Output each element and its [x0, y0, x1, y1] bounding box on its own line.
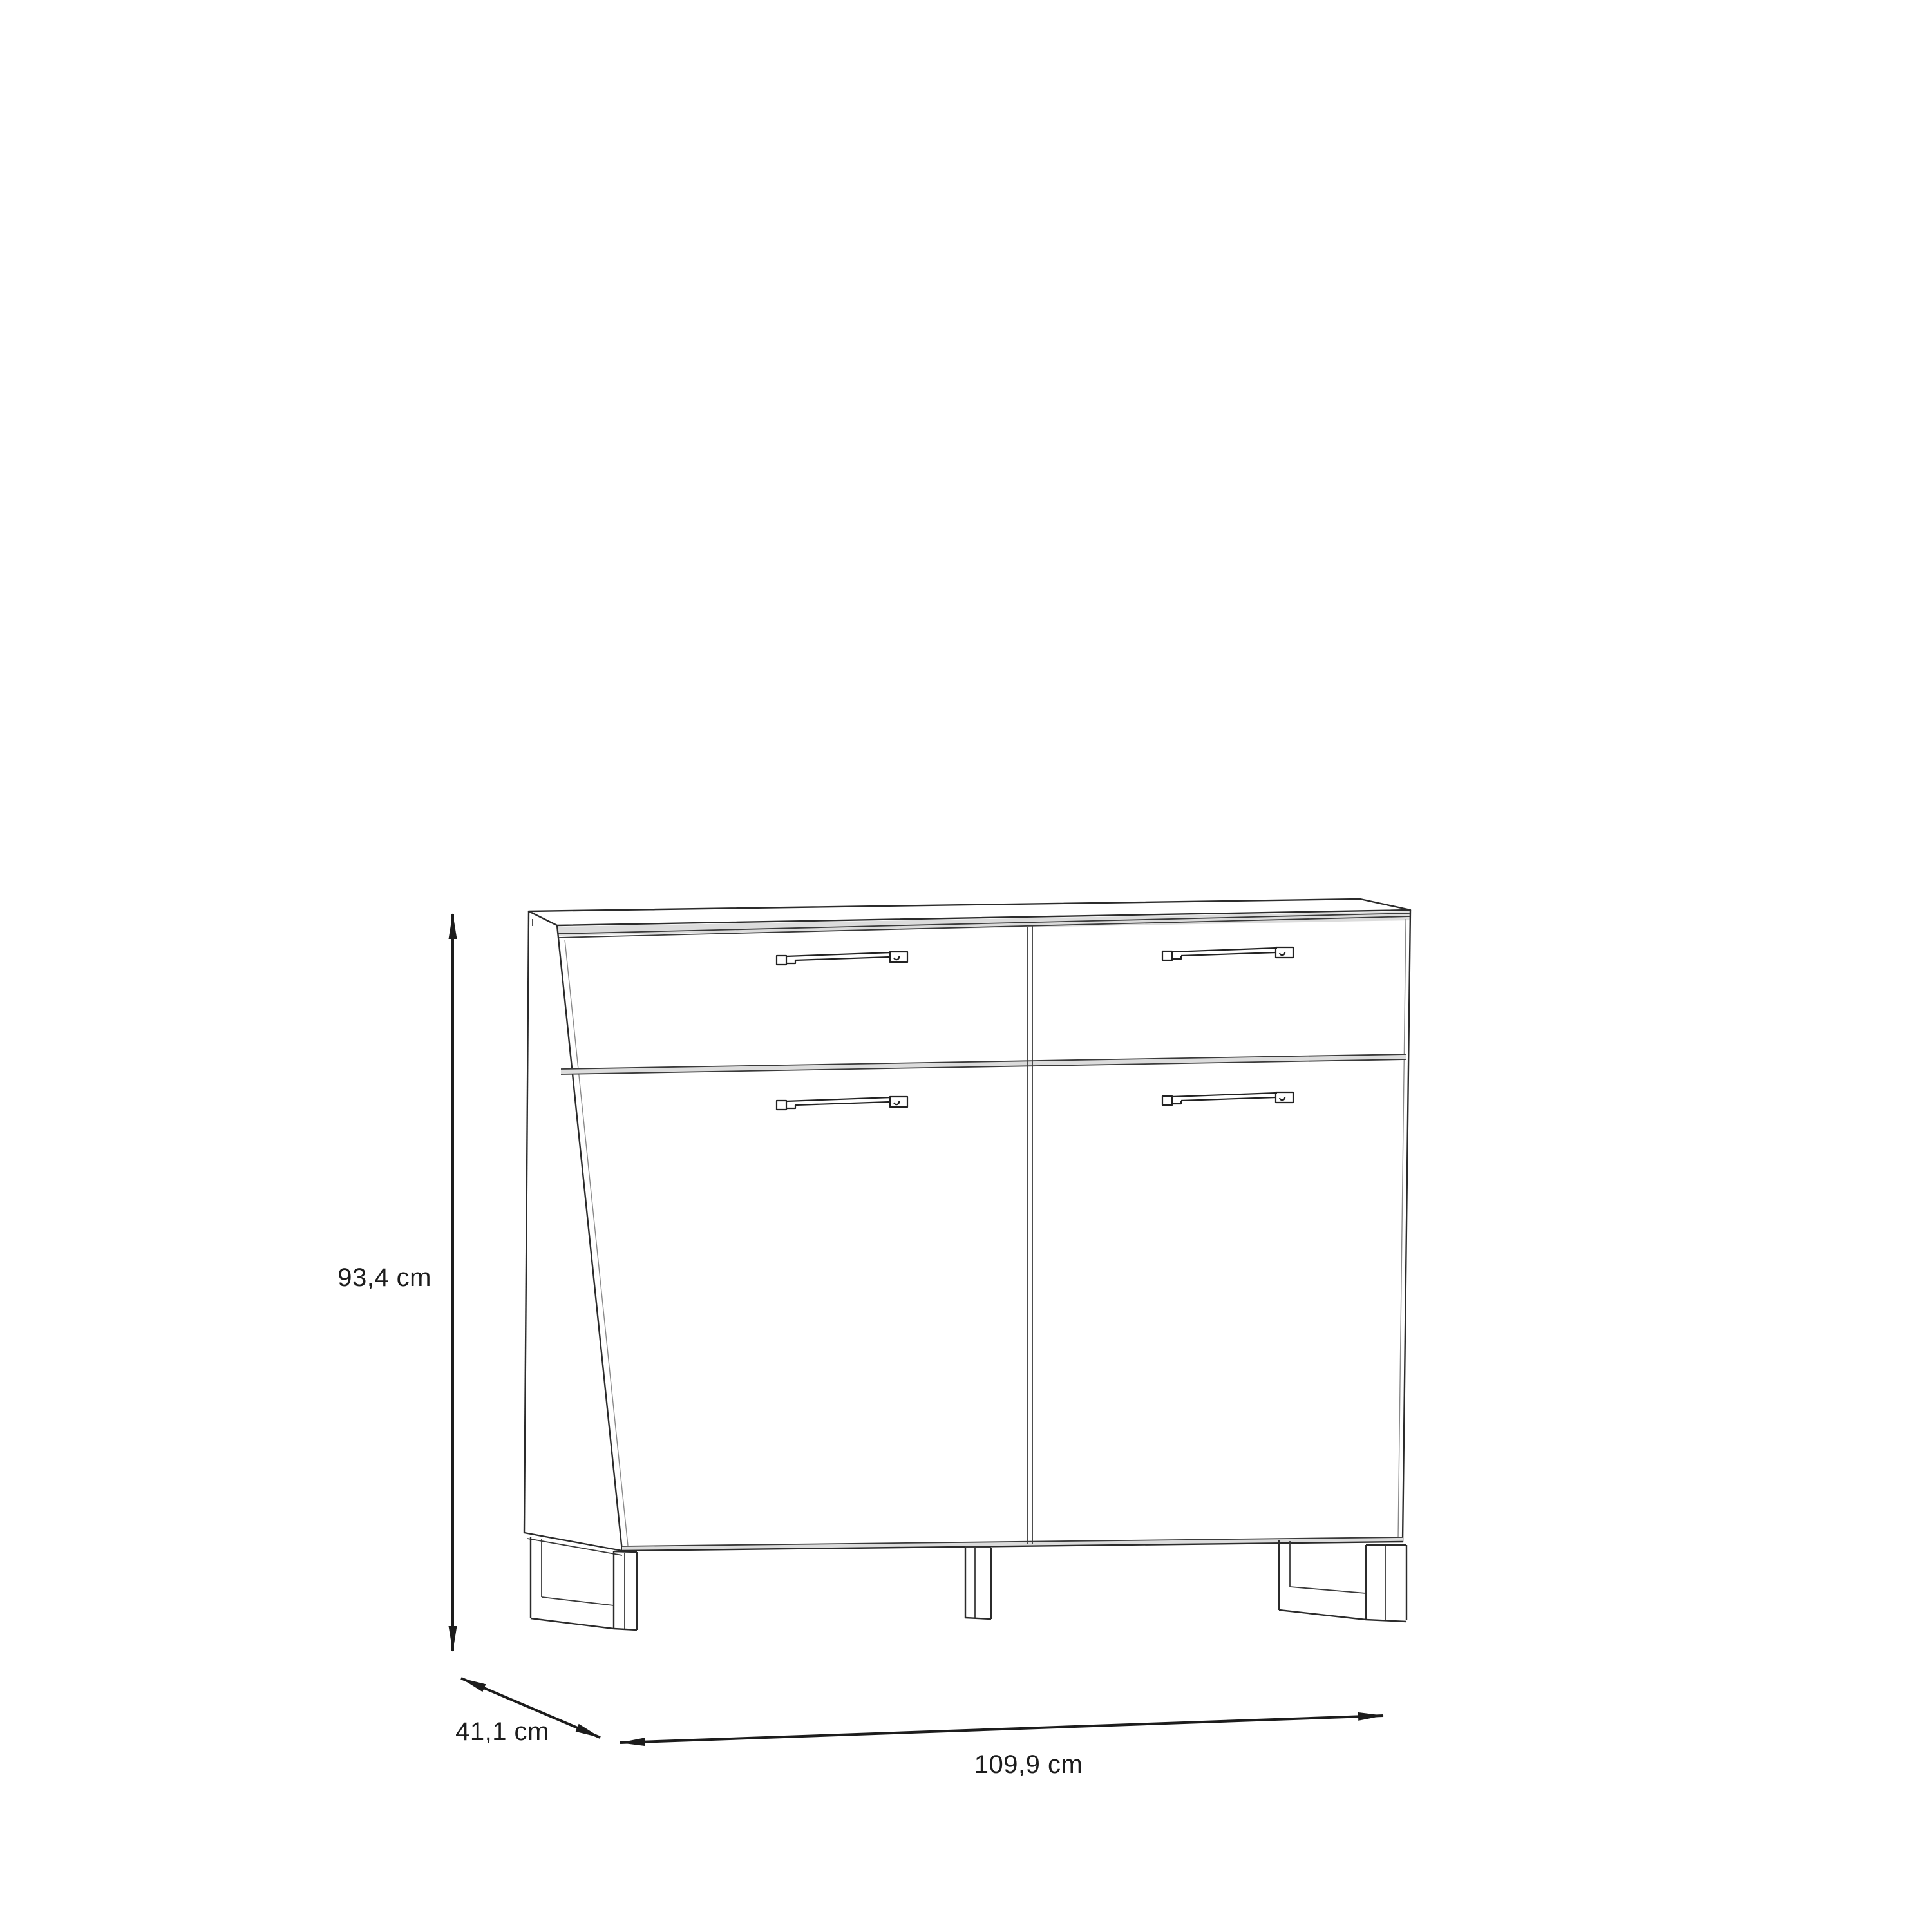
door-right	[1032, 1056, 1405, 1543]
center-divider	[1028, 926, 1032, 1544]
screenshot-canvas: 93,4 cm 41,1 cm 109,9 cm	[0, 0, 1932, 1932]
depth-label: 41,1 cm	[455, 1718, 549, 1746]
drawer-front-right	[1032, 918, 1408, 1061]
height-label: 93,4 cm	[337, 1264, 431, 1292]
dimension-drawing: 93,4 cm 41,1 cm 109,9 cm	[0, 0, 1932, 1932]
door-left	[561, 1064, 1028, 1547]
leg-right	[1279, 1540, 1406, 1622]
depth-dimension: 41,1 cm	[455, 1678, 600, 1746]
height-dimension: 93,4 cm	[337, 914, 453, 1651]
width-arrow	[620, 1716, 1383, 1743]
width-label: 109,9 cm	[974, 1750, 1083, 1779]
leg-middle	[965, 1547, 991, 1619]
width-dimension: 109,9 cm	[620, 1716, 1383, 1779]
cabinet	[524, 899, 1411, 1630]
drawer-front-left	[559, 927, 1028, 1070]
